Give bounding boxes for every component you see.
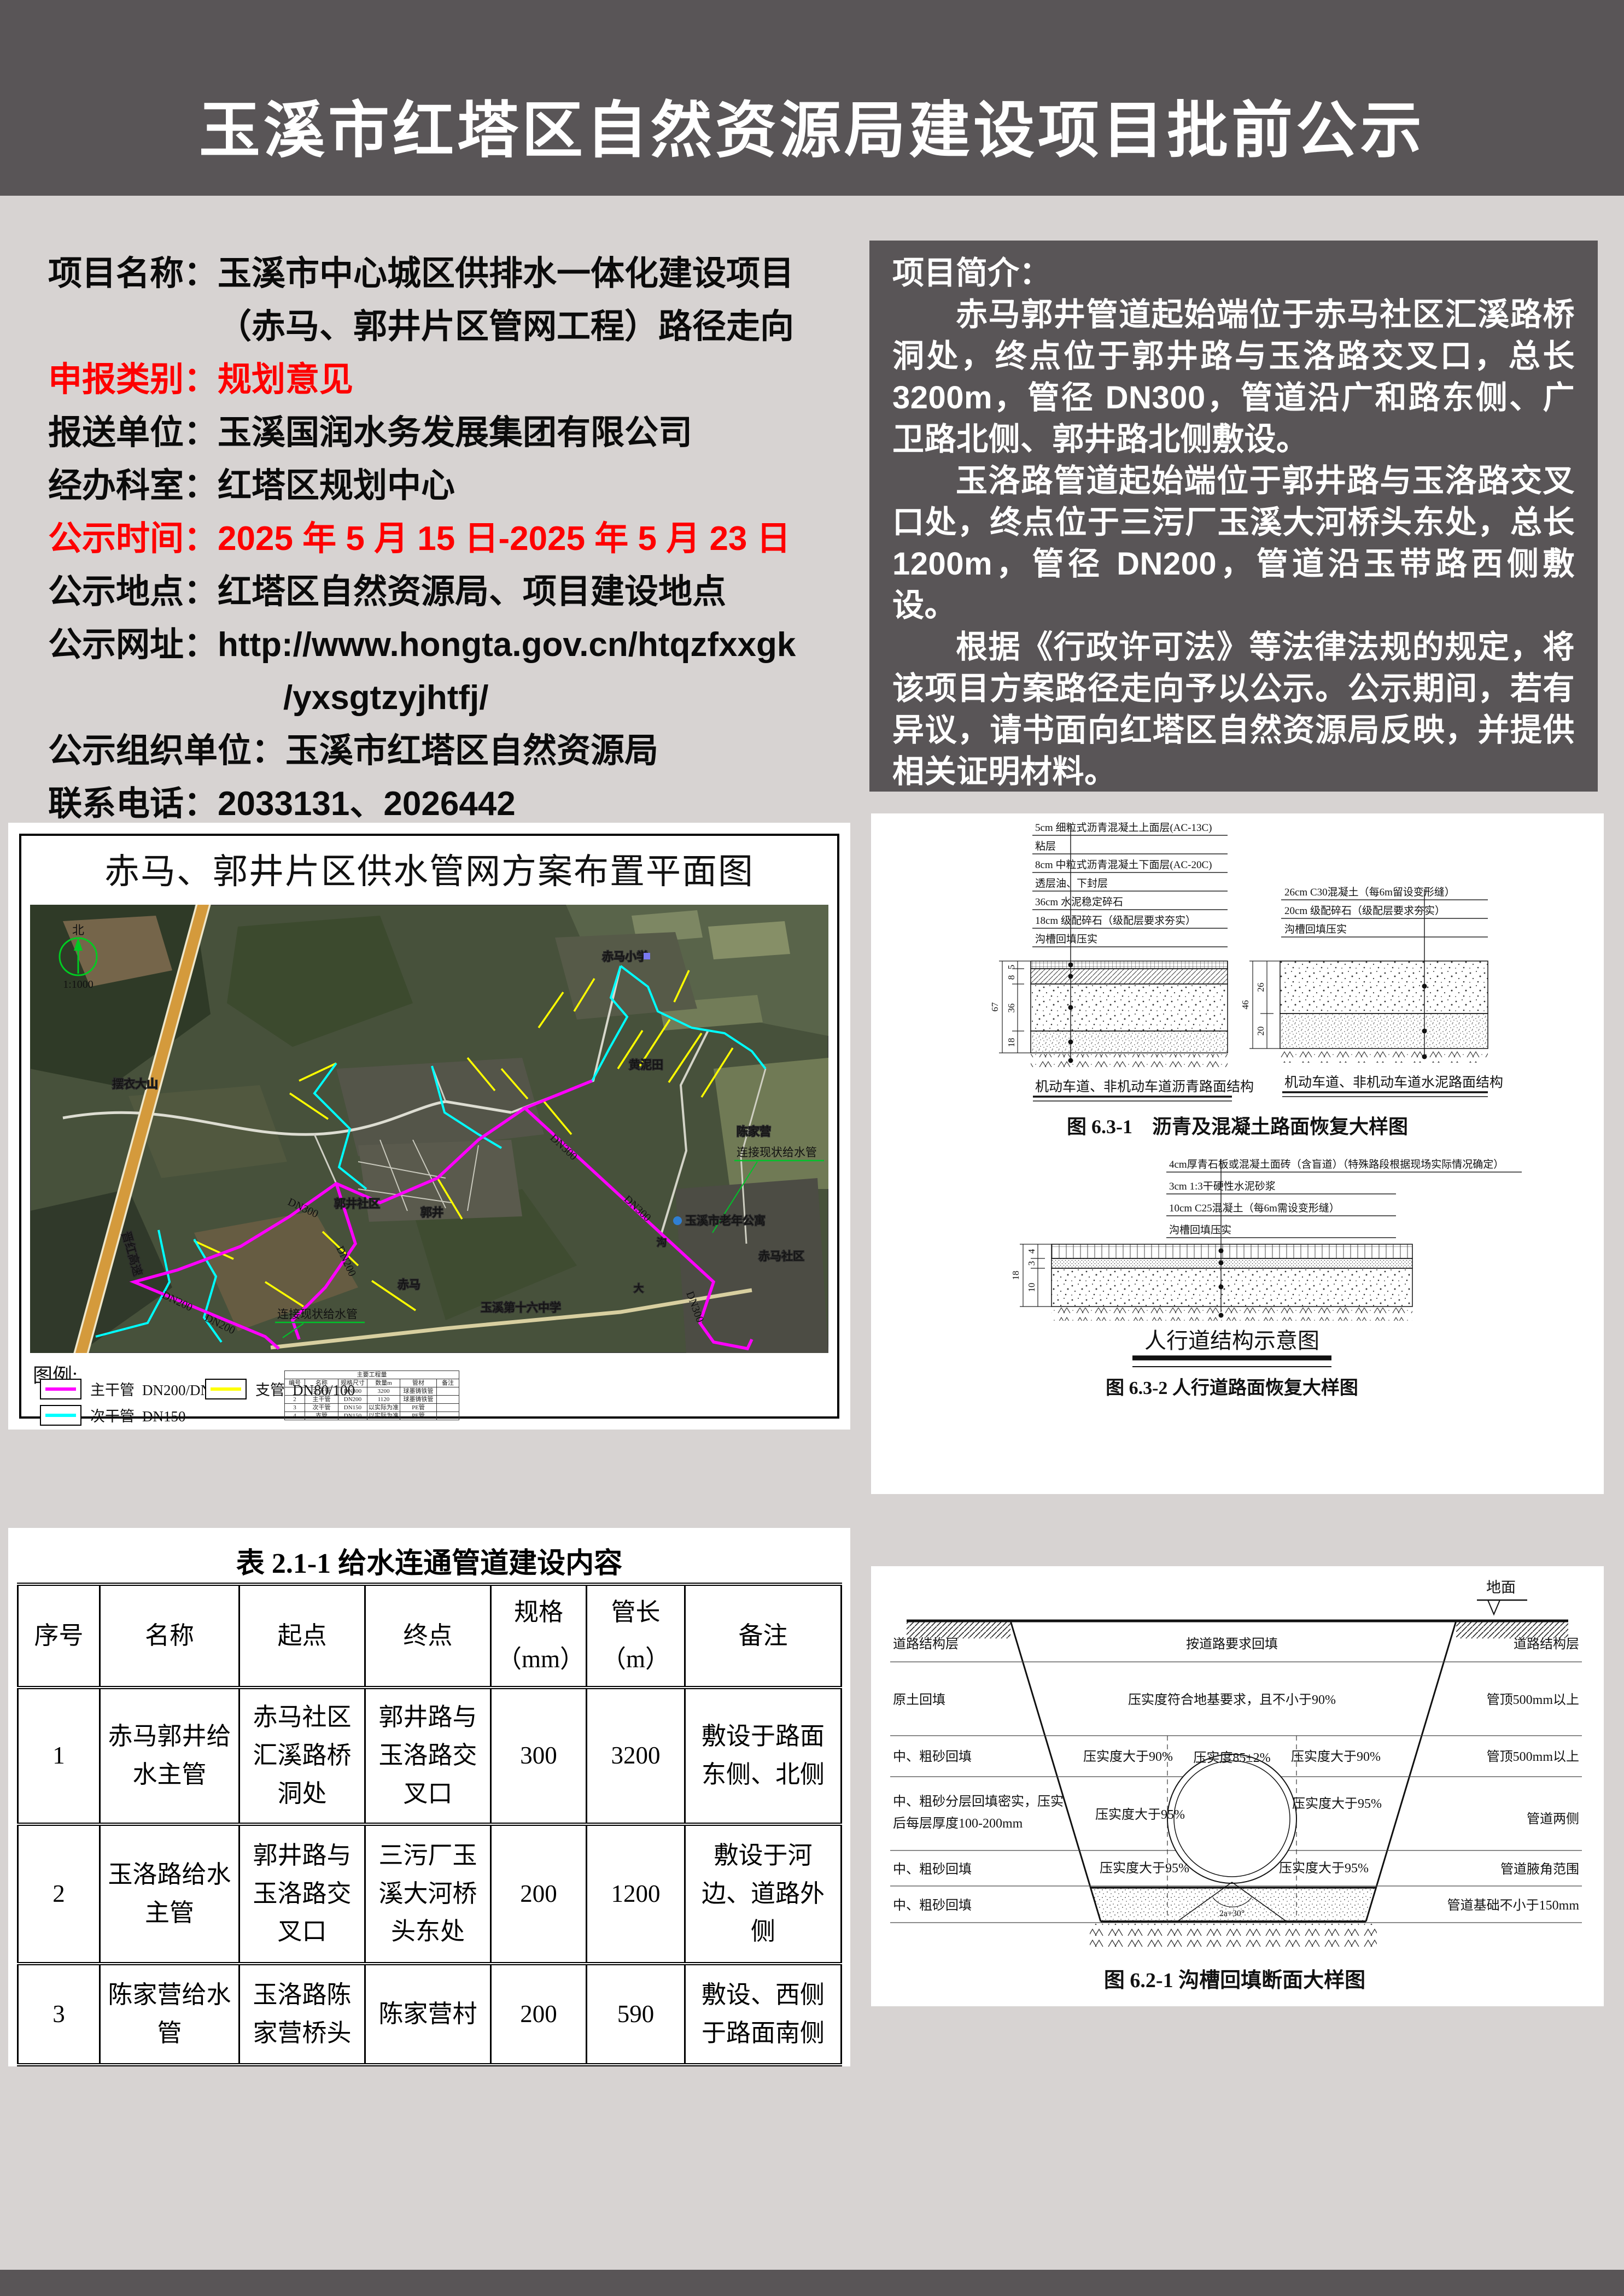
trench-wall-left (1010, 1621, 1101, 1922)
svg-text:管道腋角范围: 管道腋角范围 (1500, 1862, 1579, 1877)
pavement-figures-panel: 5cm 细粒式沥青混凝土上面层(AC-13C) 粘层 8cm 中粒式沥青混凝土下… (871, 813, 1604, 1494)
trench-figure-panel: 地面 2a+30° (871, 1566, 1604, 2006)
svg-text:压实度85±2%: 压实度85±2% (1193, 1750, 1270, 1765)
svg-text:36: 36 (1006, 1004, 1017, 1013)
svg-text:沟槽回填压实: 沟槽回填压实 (1169, 1224, 1231, 1236)
table-row: 2玉洛路给水主管郭井路与玉洛路交叉口 三污厂玉溪大河桥头东处2001200 敷设… (18, 1824, 842, 1964)
map-quantity-table: 主要工程量 编号名称 规格尺寸数量m 管材备注 1主干管DN3003200球墨铸… (284, 1370, 459, 1420)
table-row: 3陈家营给水管玉洛路陈家营桥头 陈家营村200590 敷设、西侧于路面南侧 (18, 1964, 842, 2065)
svg-text:3: 3 (1026, 1261, 1037, 1266)
svg-text:5: 5 (1006, 965, 1017, 970)
secondary-pipe-swatch (40, 1405, 81, 1426)
svg-text:10cm C25混凝土（每6m需设变形缝）: 10cm C25混凝土（每6m需设变形缝） (1169, 1202, 1340, 1214)
svg-text:郭井社区: 郭井社区 (334, 1197, 380, 1210)
svg-text:后每层厚度100-200mm: 后每层厚度100-200mm (893, 1816, 1023, 1831)
svg-text:连接现状给水管: 连接现状给水管 (277, 1308, 358, 1321)
svg-text:郭井: 郭井 (420, 1206, 443, 1219)
svg-text:中、粗砂回填: 中、粗砂回填 (893, 1898, 972, 1913)
svg-text:压实度大于95%: 压实度大于95% (1100, 1861, 1189, 1876)
legend-item-secondary-pipe: 次干管DN150 (40, 1404, 186, 1426)
svg-text:中、粗砂分层回填密实，压实: 中、粗砂分层回填密实，压实 (893, 1794, 1064, 1809)
svg-text:道路结构层: 道路结构层 (1514, 1637, 1579, 1651)
svg-text:连接现状给水管: 连接现状给水管 (737, 1146, 817, 1159)
concrete-section: 26cm C30混凝土（每6m留设变形缝） 20cm 级配碎石（级配层要求夯实）… (1240, 886, 1503, 1097)
svg-text:8: 8 (1006, 975, 1017, 980)
svg-text:26cm C30混凝土（每6m留设变形缝）: 26cm C30混凝土（每6m留设变形缝） (1284, 886, 1455, 898)
info-line-submitter: 报送单位：玉溪国润水务发展集团有限公司 (48, 406, 852, 459)
legend-secondary-spec: DN150 (142, 1408, 186, 1425)
info-line-department: 经办科室：红塔区规划中心 (48, 459, 852, 512)
svg-text:18cm 级配碎石（级配层要求夯实）: 18cm 级配碎石（级配层要求夯实） (1035, 915, 1196, 927)
svg-text:2a+30°: 2a+30° (1219, 1909, 1245, 1918)
svg-text:透层油、下封层: 透层油、下封层 (1035, 877, 1108, 889)
map-title: 赤马、郭井片区供水管网方案布置平面图 (8, 844, 850, 894)
svg-text:黄泥田: 黄泥田 (629, 1058, 663, 1071)
svg-text:沟: 沟 (657, 1237, 667, 1248)
svg-text:46: 46 (1240, 1000, 1251, 1010)
trench-figure: 地面 2a+30° (871, 1566, 1604, 2006)
svg-text:67: 67 (990, 1002, 1000, 1012)
svg-text:26: 26 (1255, 983, 1266, 992)
legend-item-main-pipe: 主干管DN200/DN300 (40, 1378, 233, 1399)
branch-pipe-swatch (205, 1379, 247, 1399)
svg-text:3cm 1:3干硬性水泥砂浆: 3cm 1:3干硬性水泥砂浆 (1169, 1180, 1276, 1192)
svg-text:压实度大于90%: 压实度大于90% (1083, 1749, 1173, 1764)
svg-text:摆衣大山: 摆衣大山 (112, 1077, 158, 1091)
info-line-url: 公示网址：http://www.hongta.gov.cn/htqzfxxgk (48, 618, 852, 671)
legend-main-name: 主干管 (90, 1382, 135, 1398)
fig632-subtitle: 人行道结构示意图 (1144, 1328, 1319, 1353)
svg-text:赤马小学: 赤马小学 (602, 950, 648, 963)
map-panel: 赤马、郭井片区供水管网方案布置平面图 (8, 823, 850, 1430)
svg-text:压实度大于95%: 压实度大于95% (1292, 1796, 1382, 1811)
svg-text:按道路要求回填: 按道路要求回填 (1186, 1637, 1278, 1651)
legend-secondary-name: 次干管 (90, 1408, 135, 1425)
project-intro-box: 项目简介： 赤马郭井管道起始端位于赤马社区汇溪路桥洞处，终点位于郭井路与玉洛路交… (869, 241, 1598, 792)
table-header-row: 序号名称 起点终点 规格 （mm）管长 （m） 备注 (18, 1584, 842, 1688)
svg-text:管道基础不小于150mm: 管道基础不小于150mm (1447, 1898, 1580, 1913)
svg-text:18: 18 (1010, 1271, 1021, 1280)
svg-text:4cm厚青石板或混凝土面砖（含盲道）（特殊路段根据现场实际情: 4cm厚青石板或混凝土面砖（含盲道）（特殊路段根据现场实际情况确定） (1169, 1158, 1504, 1170)
svg-text:压实度大于90%: 压实度大于90% (1291, 1749, 1381, 1764)
info-line-period: 公示时间：2025 年 5 月 15 日-2025 年 5 月 23 日 (48, 512, 852, 565)
info-line-organizer: 公示组织单位：玉溪市红塔区自然资源局 (48, 724, 852, 777)
svg-text:36cm 水泥稳定碎石: 36cm 水泥稳定碎石 (1035, 896, 1123, 908)
svg-text:道路结构层: 道路结构层 (893, 1637, 959, 1651)
svg-text:18: 18 (1006, 1038, 1017, 1047)
svg-text:压实度符合地基要求，且不小于90%: 压实度符合地基要求，且不小于90% (1128, 1692, 1336, 1707)
title-band: 玉溪市红塔区自然资源局建设项目批前公示 (0, 0, 1624, 196)
svg-text:粘层: 粘层 (1035, 840, 1056, 852)
footer-band (0, 2270, 1624, 2296)
svg-text:赤马: 赤马 (398, 1278, 420, 1291)
svg-text:地面: 地面 (1486, 1579, 1516, 1596)
svg-text:玉溪市老年公寓: 玉溪市老年公寓 (685, 1214, 766, 1227)
table-row: 1赤马郭井给水主管赤马社区汇溪路桥洞处 郭井路与玉洛路交叉口3003200 敷设… (18, 1688, 842, 1824)
svg-text:机动车道、非机动车道沥青路面结构: 机动车道、非机动车道沥青路面结构 (1035, 1079, 1254, 1094)
construction-table-title: 表 2.1-1 给水连通管道建设内容 (8, 1540, 850, 1581)
intro-paragraph-3: 根据《行政许可法》等法律法规的规定，将该项目方案路径走向予以公示。公示期间，若有… (892, 626, 1575, 793)
trench-left-labels: 道路结构层 原土回填 中、粗砂回填 中、粗砂分层回填密实，压实 后每层厚度100… (893, 1637, 1064, 1913)
svg-text:10: 10 (1026, 1283, 1037, 1292)
svg-text:5cm 细粒式沥青混凝土上面层(AC-13C): 5cm 细粒式沥青混凝土上面层(AC-13C) (1035, 822, 1212, 834)
sidewalk-section: 4cm厚青石板或混凝土面砖（含盲道）（特殊路段根据现场实际情况确定） 3cm 1… (1010, 1158, 1522, 1398)
intro-paragraph-2: 玉洛路管道起始端位于郭井路与玉洛路交叉口处，终点位于三污厂玉溪大河桥头东处，总长… (892, 460, 1575, 626)
main-pipe-swatch (40, 1379, 81, 1399)
svg-text:压实度大于95%: 压实度大于95% (1279, 1861, 1369, 1876)
svg-text:4: 4 (1026, 1249, 1037, 1254)
project-info-block: 项目名称：玉溪市中心城区供排水一体化建设项目 （赤马、郭井片区管网工程）路径走向… (48, 247, 852, 830)
svg-text:中、粗砂回填: 中、粗砂回填 (893, 1862, 972, 1877)
trench-right-labels: 道路结构层 管顶500mm以上 管顶500mm以上 管道两侧 管道腋角范围 管道… (1447, 1637, 1580, 1913)
trench-wall-right (1366, 1621, 1456, 1922)
svg-text:压实度大于95%: 压实度大于95% (1095, 1807, 1185, 1822)
construction-table-panel: 表 2.1-1 给水连通管道建设内容 序号名称 起点终点 规格 （mm）管长 （… (8, 1528, 850, 2066)
svg-text:北: 北 (72, 923, 84, 937)
svg-text:20cm 级配碎石（级配层要求夯实）: 20cm 级配碎石（级配层要求夯实） (1284, 905, 1445, 917)
info-line-location: 公示地点：红塔区自然资源局、项目建设地点 (48, 565, 852, 618)
svg-text:陈家营: 陈家营 (737, 1125, 771, 1138)
fig621-caption: 图 6.2-1 沟槽回填断面大样图 (1104, 1969, 1365, 1992)
intro-paragraph-1: 赤马郭井管道起始端位于赤马社区汇溪路桥洞处，终点位于郭井路与玉洛路交叉口，总长 … (892, 294, 1575, 460)
svg-text:中、粗砂回填: 中、粗砂回填 (893, 1749, 972, 1764)
svg-text:管道两侧: 管道两侧 (1527, 1812, 1579, 1826)
ground-label: 地面 (1477, 1579, 1527, 1614)
info-line-project-name: 项目名称：玉溪市中心城区供排水一体化建设项目 (48, 247, 852, 300)
svg-text:20: 20 (1255, 1027, 1266, 1036)
info-line-project-name-2: （赤马、郭井片区管网工程）路径走向 (218, 300, 852, 353)
svg-text:玉溪第十六中学: 玉溪第十六中学 (481, 1301, 561, 1314)
construction-table: 序号名称 起点终点 规格 （mm）管长 （m） 备注 1赤马郭井给水主管赤马社区… (17, 1583, 842, 2066)
svg-text:管顶500mm以上: 管顶500mm以上 (1487, 1692, 1579, 1707)
svg-text:8cm 中粒式沥青混凝土下面层(AC-20C): 8cm 中粒式沥青混凝土下面层(AC-20C) (1035, 859, 1212, 871)
svg-text:1:1000: 1:1000 (63, 979, 94, 991)
svg-text:赤马社区: 赤马社区 (758, 1250, 804, 1263)
fig631-caption: 图 6.3-1 沥青及混凝土路面恢复大样图 (1067, 1116, 1408, 1138)
legend-branch-name: 支管 (255, 1382, 285, 1398)
qty-title: 主要工程量 (285, 1371, 459, 1379)
svg-text:机动车道、非机动车道水泥路面结构: 机动车道、非机动车道水泥路面结构 (1284, 1075, 1503, 1090)
pavement-figures: 5cm 细粒式沥青混凝土上面层(AC-13C) 粘层 8cm 中粒式沥青混凝土下… (871, 813, 1604, 1494)
svg-text:原土回填: 原土回填 (893, 1692, 945, 1707)
svg-text:沟槽回填压实: 沟槽回填压实 (1035, 933, 1097, 945)
svg-text:沟槽回填压实: 沟槽回填压实 (1284, 923, 1347, 935)
page-title: 玉溪市红塔区自然资源局建设项目批前公示 (0, 81, 1624, 169)
info-line-category: 申报类别：规划意见 (48, 353, 852, 406)
satellite-map: DN300 DN300 DN300 DN300 DN200 DN200 DN20… (30, 905, 828, 1353)
svg-text:大: 大 (634, 1283, 644, 1294)
asphalt-section: 5cm 细粒式沥青混凝土上面层(AC-13C) 粘层 8cm 中粒式沥青混凝土下… (990, 822, 1254, 1101)
intro-heading: 项目简介： (892, 253, 1575, 294)
info-line-url-2: /yxsgtzyjhtfj/ (283, 671, 852, 724)
fig632-caption: 图 6.3-2 人行道路面恢复大样图 (1106, 1378, 1358, 1398)
svg-text:管顶500mm以上: 管顶500mm以上 (1487, 1749, 1579, 1764)
